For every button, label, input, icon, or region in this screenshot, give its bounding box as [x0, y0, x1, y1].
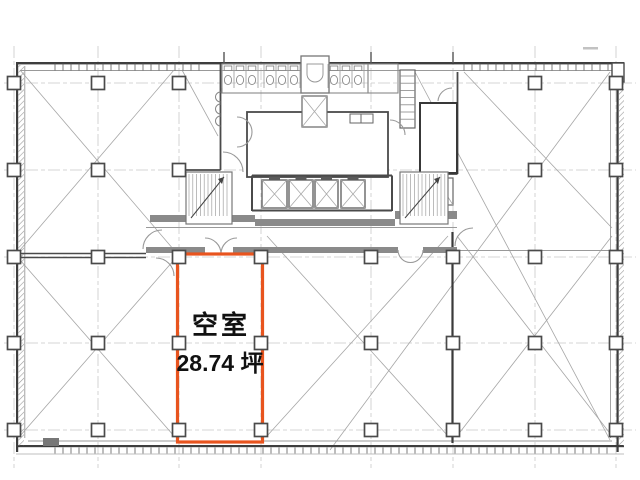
structural-column — [8, 77, 21, 90]
wall-band — [255, 219, 395, 226]
structural-column — [8, 251, 21, 264]
electrical-room — [420, 103, 457, 173]
structural-column — [529, 251, 542, 264]
structural-column — [173, 424, 186, 437]
structural-column — [255, 251, 268, 264]
structural-column — [92, 251, 105, 264]
floor-plan-page: 空室 28.74 坪 — [0, 0, 640, 480]
structural-column — [92, 424, 105, 437]
bottom-left-entry — [43, 438, 59, 446]
structural-column — [610, 164, 623, 177]
floor-plan-canvas: 空室 28.74 坪 — [0, 0, 640, 480]
structural-column — [365, 251, 378, 264]
dimension-mark — [583, 47, 598, 50]
structural-column — [8, 337, 21, 350]
structural-column — [529, 77, 542, 90]
structural-column — [173, 164, 186, 177]
structural-column — [173, 77, 186, 90]
vacancy-status-label: 空室 — [192, 310, 250, 340]
structural-column — [365, 337, 378, 350]
structural-column — [447, 424, 460, 437]
structural-column — [8, 424, 21, 437]
structural-column — [610, 424, 623, 437]
bottom-wall — [16, 445, 624, 447]
restroom-vestibule — [301, 56, 329, 93]
vacancy-area-label: 28.74 坪 — [177, 350, 264, 376]
structural-column — [529, 164, 542, 177]
structural-column — [529, 337, 542, 350]
structural-column — [447, 337, 460, 350]
structural-column — [529, 424, 542, 437]
structural-column — [92, 337, 105, 350]
structural-column — [92, 77, 105, 90]
structural-column — [365, 424, 378, 437]
structural-column — [8, 164, 21, 177]
structural-column — [255, 337, 268, 350]
structural-column — [610, 77, 623, 90]
structural-column — [173, 251, 186, 264]
structural-column — [173, 337, 186, 350]
structural-column — [255, 424, 268, 437]
structural-column — [447, 251, 460, 264]
structural-column — [610, 251, 623, 264]
structural-column — [92, 164, 105, 177]
structural-column — [610, 337, 623, 350]
